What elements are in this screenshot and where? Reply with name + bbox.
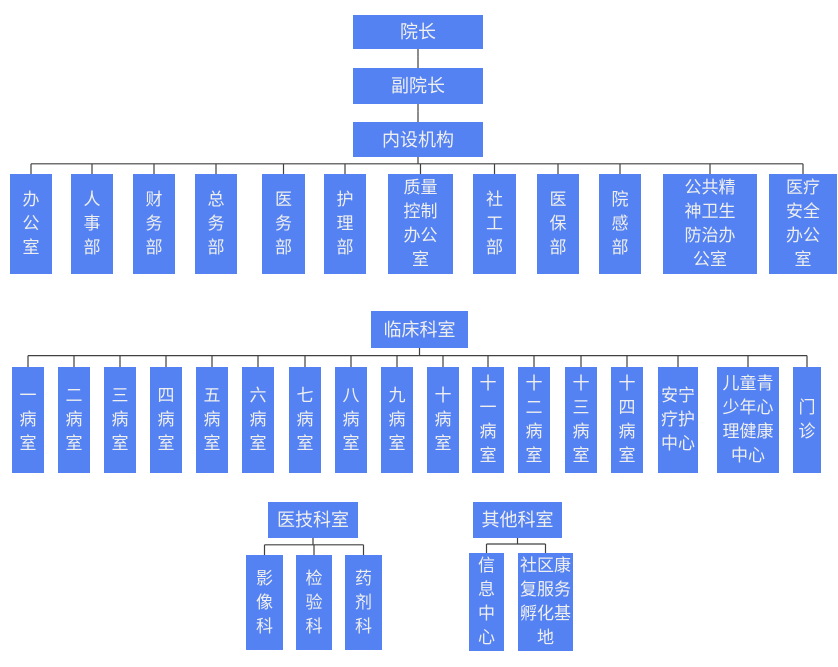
- node-label: 临床科室: [384, 319, 456, 341]
- node-label: 十四病室: [617, 372, 638, 468]
- node-label: 安宁疗护中心: [659, 384, 697, 456]
- node-label: 办公室: [21, 188, 42, 260]
- ward-box: 九病室: [381, 367, 413, 473]
- node-label: 十一病室: [478, 372, 499, 468]
- node-label: 检验科: [304, 567, 325, 639]
- node-label: 信息中心: [476, 554, 497, 650]
- youth-mental-health-center-box: 儿童青少年心理健康中心: [717, 367, 779, 473]
- node-label: 四病室: [156, 384, 177, 456]
- vice-president-box: 副院长: [353, 68, 483, 104]
- dept-box: 办公室: [10, 174, 52, 274]
- ward-box: 二病室: [58, 367, 90, 473]
- node-label: 儿童青少年心理健康中心: [721, 372, 776, 468]
- node-label: 十二病室: [524, 372, 545, 468]
- hospice-center-box: 安宁疗护中心: [658, 367, 698, 473]
- dept-box: 社工部: [473, 174, 516, 274]
- dept-box: 人事部: [71, 174, 113, 274]
- clinical-header-box: 临床科室: [371, 311, 468, 348]
- node-label: 社区康复服务孵化基地: [518, 554, 573, 650]
- node-label: 内设机构: [382, 129, 454, 151]
- ward-box: 七病室: [289, 367, 321, 473]
- medtech-box: 影像科: [246, 555, 283, 650]
- president-box: 院长: [353, 15, 483, 49]
- node-label: 二病室: [64, 384, 85, 456]
- ward-box: 八病室: [335, 367, 367, 473]
- internal-org-box: 内设机构: [353, 122, 483, 157]
- dept-box: 医务部: [262, 174, 305, 274]
- dept-box: 公共精神卫生防治办公室: [663, 174, 757, 274]
- ward-box: 三病室: [104, 367, 136, 473]
- node-label: 医保部: [548, 188, 569, 260]
- ward-box: 十病室: [427, 367, 459, 473]
- dept-box: 院感部: [599, 174, 641, 274]
- ward-box: 六病室: [242, 367, 274, 473]
- info-center-box: 信息中心: [469, 553, 504, 651]
- dept-box: 总务部: [195, 174, 237, 274]
- node-label: 五病室: [202, 384, 223, 456]
- node-label: 医技科室: [277, 509, 349, 531]
- dept-box: 医疗安全办公室: [769, 174, 837, 274]
- medtech-header-box: 医技科室: [268, 502, 358, 538]
- ward-box: 一病室: [12, 367, 44, 473]
- ward-box: 十一病室: [472, 367, 504, 473]
- node-label: 护理部: [335, 188, 356, 260]
- ward-box: 十二病室: [518, 367, 550, 473]
- node-label: 影像科: [254, 567, 275, 639]
- org-chart: 院长 副院长 内设机构 办公室 人事部 财务部 总务部 医务部 护理部 质量控制…: [0, 0, 838, 667]
- medtech-box: 检验科: [296, 555, 332, 650]
- ward-box: 五病室: [196, 367, 228, 473]
- node-label: 财务部: [144, 188, 165, 260]
- dept-box: 医保部: [537, 174, 579, 274]
- ward-box: 四病室: [150, 367, 182, 473]
- node-label: 三病室: [110, 384, 131, 456]
- node-label: 人事部: [82, 188, 103, 260]
- community-rehab-base-box: 社区康复服务孵化基地: [518, 553, 573, 651]
- dept-box: 财务部: [133, 174, 175, 274]
- node-label: 八病室: [341, 384, 362, 456]
- ward-box: 十三病室: [565, 367, 597, 473]
- node-label: 副院长: [391, 75, 445, 97]
- node-label: 医疗安全办公室: [784, 176, 822, 272]
- dept-box: 质量控制办公室: [388, 174, 453, 274]
- node-label: 门诊: [797, 396, 818, 444]
- medtech-box: 药剂科: [345, 555, 382, 650]
- dept-box: 护理部: [324, 174, 366, 274]
- node-label: 十病室: [433, 384, 454, 456]
- node-label: 七病室: [295, 384, 316, 456]
- node-label: 十三病室: [571, 372, 592, 468]
- node-label: 药剂科: [353, 567, 374, 639]
- node-label: 六病室: [248, 384, 269, 456]
- outpatient-box: 门诊: [793, 367, 821, 473]
- node-label: 社工部: [484, 188, 505, 260]
- node-label: 九病室: [387, 384, 408, 456]
- node-label: 总务部: [206, 188, 227, 260]
- node-label: 院感部: [610, 188, 631, 260]
- node-label: 其他科室: [482, 509, 554, 531]
- node-label: 医务部: [273, 188, 294, 260]
- other-header-box: 其他科室: [473, 502, 562, 538]
- node-label: 院长: [400, 21, 436, 43]
- node-label: 质量控制办公室: [402, 176, 440, 272]
- ward-box: 十四病室: [611, 367, 643, 473]
- node-label: 一病室: [18, 384, 39, 456]
- node-label: 公共精神卫生防治办公室: [683, 176, 738, 272]
